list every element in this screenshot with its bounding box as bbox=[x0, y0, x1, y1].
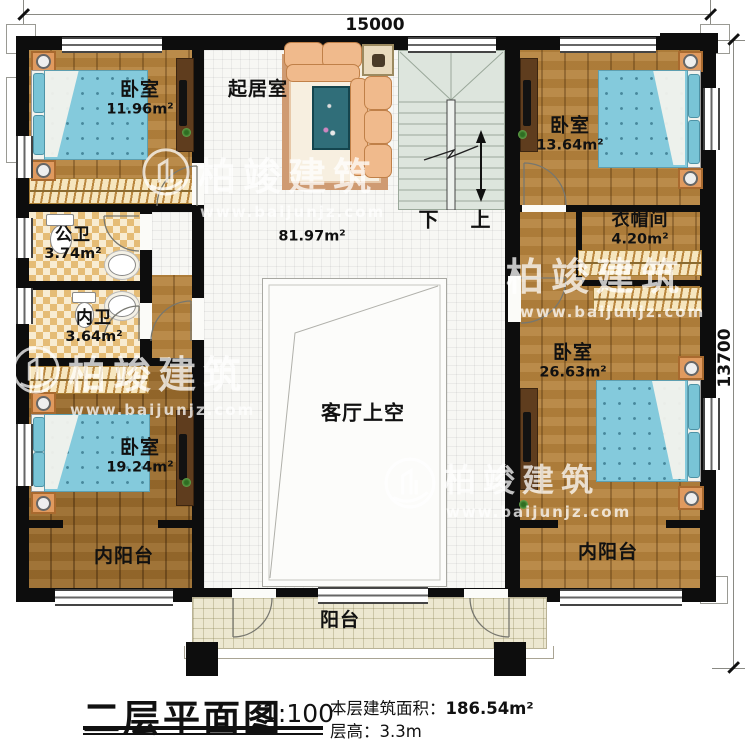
window bbox=[16, 136, 33, 178]
watermark-url: www.baijunjz.com bbox=[70, 401, 255, 419]
nightstand bbox=[678, 486, 704, 510]
window bbox=[703, 398, 720, 470]
coffee-table bbox=[312, 86, 350, 150]
room-label-void: 客厅上空 bbox=[321, 402, 405, 425]
window bbox=[16, 288, 33, 324]
dim-right-value: 13700 bbox=[715, 328, 735, 387]
title-underline-thin bbox=[83, 733, 323, 735]
bed-pillow bbox=[688, 432, 700, 478]
sink bbox=[108, 254, 136, 276]
watermark: 柏竣建筑 www.baijunjz.com bbox=[382, 455, 631, 521]
window bbox=[62, 37, 162, 53]
bed-pillow bbox=[688, 74, 700, 118]
floor-height-text: 层高：3.3m bbox=[330, 718, 422, 742]
stairs-down-label: 下 bbox=[419, 209, 440, 232]
window bbox=[703, 88, 720, 150]
room-label-bedroom-bl: 卧室 19.24m² bbox=[106, 438, 173, 477]
brand-logo-icon bbox=[10, 344, 62, 396]
door-opening bbox=[232, 589, 276, 598]
bed-pillow bbox=[688, 384, 700, 430]
sofa-back-cushion bbox=[364, 110, 392, 144]
tv bbox=[179, 434, 187, 480]
room-label-inner-balcony-left: 内阳台 bbox=[94, 546, 154, 568]
nightstand bbox=[31, 492, 56, 514]
bed-pillow bbox=[33, 73, 45, 113]
stub-wall bbox=[158, 520, 192, 528]
living-area-value: 81.97m² bbox=[278, 229, 345, 246]
nightstand bbox=[31, 160, 56, 181]
plant bbox=[182, 478, 191, 487]
nightstand bbox=[31, 51, 56, 72]
tv bbox=[523, 80, 531, 126]
room-label-public-bath: 公卫 3.74m² bbox=[44, 226, 101, 262]
room-label-living: 起居室 bbox=[228, 79, 288, 101]
plant bbox=[182, 128, 191, 137]
brand-logo-icon bbox=[140, 146, 192, 198]
room-label-bedroom-tr: 卧室 13.64m² bbox=[536, 116, 603, 155]
watermark-brand: 柏竣建筑 bbox=[68, 344, 255, 399]
nightstand bbox=[678, 356, 704, 380]
sofa-seat bbox=[286, 64, 360, 82]
window bbox=[55, 589, 173, 606]
window bbox=[560, 37, 656, 53]
stub-wall bbox=[29, 520, 63, 528]
sofa-back-cushion bbox=[364, 76, 392, 110]
brand-logo-icon bbox=[382, 455, 438, 511]
watermark-url: www.baijunjz.com bbox=[200, 203, 385, 221]
watermark-url: www.baijunjz.com bbox=[520, 303, 705, 321]
watermark-brand: 柏竣建筑 bbox=[198, 146, 385, 201]
vestibule-tile-floor bbox=[152, 212, 192, 275]
window bbox=[560, 589, 682, 606]
stub-wall bbox=[666, 520, 700, 528]
floor-plan-canvas: 15000 13700 bbox=[0, 0, 750, 745]
window bbox=[16, 424, 33, 486]
watermark-brand: 柏竣建筑 bbox=[444, 455, 631, 501]
balcony-pillar-right bbox=[494, 642, 526, 676]
plant bbox=[518, 130, 527, 139]
title-underline-thick bbox=[83, 726, 323, 730]
bed-pillow bbox=[688, 120, 700, 164]
drawing-scale: 1:100 bbox=[262, 699, 334, 728]
bed-pillow bbox=[33, 417, 45, 452]
door-opening bbox=[522, 205, 566, 212]
void-over-living-room bbox=[262, 278, 447, 587]
watermark: 柏竣建筑 www.baijunjz.com bbox=[506, 246, 705, 321]
watermark-brand: 柏竣建筑 bbox=[506, 246, 705, 301]
room-label-cloakroom: 衣帽间 4.20m² bbox=[611, 210, 668, 247]
door-opening bbox=[464, 589, 508, 598]
room-label-bedroom-tl: 卧室 11.96m² bbox=[106, 80, 173, 119]
floor-area-text: 本层建筑面积：186.54m² bbox=[330, 695, 534, 719]
stairwell bbox=[398, 50, 505, 210]
room-label-bedroom-br: 卧室 26.63m² bbox=[539, 343, 606, 382]
nightstand bbox=[678, 168, 703, 189]
watermark: 柏竣建筑 www.baijunjz.com bbox=[10, 344, 255, 419]
watermark-url: www.baijunjz.com bbox=[446, 503, 631, 521]
room-label-private-bath: 内卫 3.64m² bbox=[65, 309, 122, 345]
tv bbox=[179, 80, 187, 126]
door-opening bbox=[140, 303, 152, 339]
bed-pillow bbox=[33, 452, 45, 487]
stairs-up-label: 上 bbox=[471, 209, 492, 232]
nightstand bbox=[678, 51, 703, 72]
window bbox=[408, 37, 496, 53]
dim-top-value: 15000 bbox=[345, 15, 404, 35]
side-table bbox=[362, 44, 394, 76]
stub-wall bbox=[520, 520, 558, 528]
window bbox=[16, 218, 33, 258]
room-label-balcony: 阳台 bbox=[320, 610, 360, 632]
balcony-pillar-left bbox=[186, 642, 218, 676]
door-opening bbox=[192, 298, 204, 340]
balcony-sliding-door bbox=[318, 587, 428, 604]
room-label-inner-balcony-right: 内阳台 bbox=[578, 542, 638, 564]
watermark: 柏竣建筑 www.baijunjz.com bbox=[140, 146, 385, 221]
bed-pillow bbox=[33, 115, 45, 155]
